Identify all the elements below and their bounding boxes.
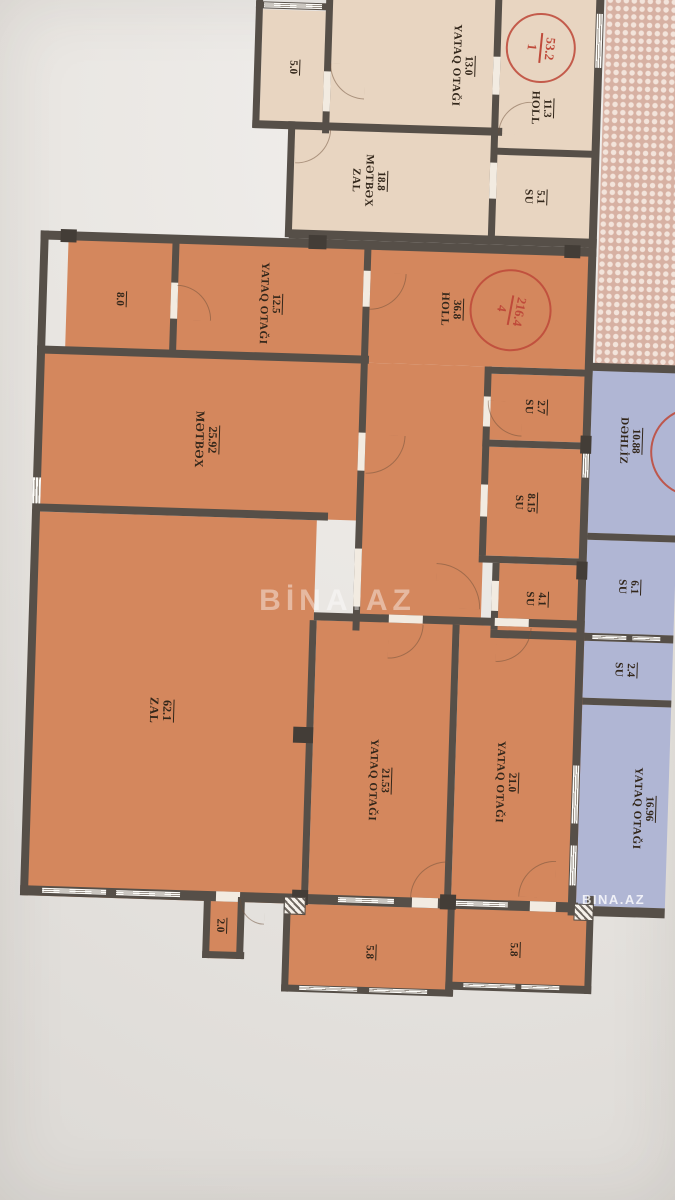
column [576, 561, 588, 579]
label-apt4-balcony-bottom1: 5.8 [363, 944, 378, 960]
label-neighbor-bedroom: YATAQ OTAĞI 16.96 [629, 767, 658, 850]
room-name: YATAQ OTAĞI [256, 262, 271, 345]
column [564, 245, 580, 258]
column [293, 727, 313, 744]
label-apt4-balcony-left: 2.0 [214, 917, 229, 933]
label-apt1-balcony: 5.0 [287, 59, 302, 75]
door-opening [323, 71, 331, 111]
room-area: 16.96 [643, 795, 657, 822]
label-apt4-bedroom1: YATAQ OTAĞI 12.5 [256, 262, 285, 345]
room-area: 21.53 [378, 767, 392, 794]
door-opening [480, 484, 488, 516]
label-apt4-holl: HOLL 36.8 [438, 292, 466, 327]
column [60, 229, 76, 242]
label-apt4-su2: SU 8.15 [512, 492, 539, 514]
door-opening [492, 57, 500, 95]
room-area: 62.1 [159, 699, 174, 722]
label-apt4-balcony-bottom2: 5.8 [507, 942, 522, 958]
room-name: SU [522, 189, 535, 205]
room-area: 5.0 [287, 59, 301, 75]
room-area: 2.7 [534, 399, 548, 415]
room-name: MƏTBƏX [191, 411, 206, 469]
room-name: SU [522, 399, 535, 415]
room-name: YATAQ OTAĞI [492, 741, 507, 824]
apartment-total-area: 53.2 [542, 37, 558, 61]
room-area: 36.8 [450, 299, 464, 321]
room-area: 8.15 [524, 492, 538, 514]
label-apt1-su: SU 5.1 [522, 189, 549, 206]
label-neighbor-su2: SU 2.4 [612, 662, 639, 679]
stamp-fraction: 4 216.4 [492, 293, 529, 328]
room-area: 12.5 [269, 293, 283, 315]
room-area: 11.3 [541, 98, 555, 119]
room-area: 2.4 [624, 662, 638, 678]
label-apt4-su1: SU 2.7 [522, 399, 549, 416]
label-apt1-holl: HOLL 11.3 [528, 91, 556, 126]
label-neighbor-su1: SU 6.1 [615, 579, 642, 596]
room-name: YATAQ OTAĞI [449, 24, 464, 107]
room-name: YATAQ OTAĞI [365, 739, 380, 822]
room-name: HOLL [438, 292, 451, 327]
hatched-column [283, 896, 306, 915]
door-opening [412, 897, 438, 908]
room-area: 5.8 [363, 944, 377, 960]
door-opening [495, 618, 529, 627]
room-name: ZAL [350, 168, 363, 193]
room-area: 5.1 [534, 189, 548, 205]
room-name: ZAL [146, 697, 160, 724]
window [632, 636, 660, 641]
apartment-number: 4 [494, 304, 509, 313]
room-area: 25.92 [205, 425, 220, 454]
watermark-center: BİNA.AZ [240, 578, 435, 624]
label-neighbor-dehliz: DƏHLİZ 10.88 [616, 417, 644, 465]
label-apt4-metbex: MƏTBƏX 25.92 [191, 411, 222, 469]
door-opening [530, 901, 556, 912]
room-name: SU [615, 579, 628, 595]
label-apt4-su3: SU 4.1 [523, 591, 550, 608]
column [580, 435, 592, 453]
room-area: 21.0 [505, 772, 519, 794]
door-opening [491, 581, 499, 611]
door-opening [357, 433, 365, 471]
room-area: 18.8 [374, 170, 388, 192]
column [308, 235, 326, 250]
room-area: 10.88 [629, 428, 643, 455]
label-apt4-bedroom3: YATAQ OTAĞI 21.0 [492, 741, 521, 824]
room-area: 8.0 [113, 291, 127, 307]
room-area: 4.1 [535, 591, 549, 607]
room-area: 2.0 [214, 917, 228, 933]
label-apt4-zal: ZAL 62.1 [146, 697, 176, 724]
watermark-corner: BINA.AZ [582, 892, 645, 907]
room-name: HOLL [528, 91, 541, 126]
label-apt1-bedroom: YATAQ OTAĞI 13.0 [449, 24, 478, 107]
room-name: YATAQ OTAĞI [629, 767, 644, 850]
room-area: 5.8 [507, 942, 521, 958]
room-name: SU [512, 495, 525, 511]
room-area: 6.1 [628, 579, 642, 595]
door-opening [489, 163, 497, 199]
window [570, 845, 577, 885]
apartment-number: 1 [525, 43, 539, 51]
room-name: MƏTBƏX [362, 154, 376, 207]
room-area: 13.0 [462, 55, 476, 77]
room-name: SU [612, 662, 625, 678]
label-apt1-zal-metbex: ZAL MƏTBƏX 18.8 [349, 154, 390, 208]
hatched-area [595, 0, 675, 373]
room-name: DƏHLİZ [616, 417, 630, 465]
floor-plan-photo: 5.0 YATAQ OTAĞI 13.0 ZAL MƏTBƏX 18.8 HOL… [0, 0, 675, 1200]
room-name: SU [523, 591, 536, 607]
label-apt4-balcony-top: 8.0 [113, 291, 128, 307]
label-apt4-bedroom2: YATAQ OTAĞI 21.53 [365, 739, 394, 822]
stamp-fraction: 1 53.2 [523, 32, 558, 65]
door-opening [216, 891, 240, 902]
